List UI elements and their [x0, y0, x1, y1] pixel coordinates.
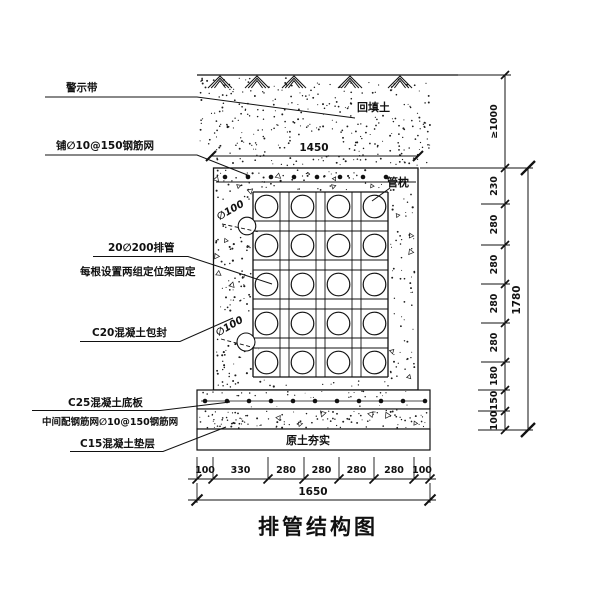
rebar-dot: [269, 399, 274, 404]
base-slab-label: C25混凝土底板: [68, 396, 143, 409]
duct-bank-section-drawing: ∅100 ∅100 管枕 原土夯实 回填土 警示带 铺∅10@150钢筋网 20…: [0, 0, 600, 600]
rebar-dot: [338, 175, 343, 180]
pipe-support-label: 管枕: [387, 175, 409, 189]
right-seg-6: 150: [489, 390, 500, 410]
ground-hatch-mark: [288, 81, 299, 88]
pipe-circle: [363, 234, 386, 257]
pipe-circle: [291, 312, 314, 335]
pipe-circle: [363, 351, 386, 374]
bottom-seg-6: 100: [412, 465, 432, 476]
ground-hatch-mark: [248, 78, 266, 88]
right-seg-5: 180: [489, 366, 500, 386]
pipe-circle: [291, 351, 314, 374]
right-dim-texts: ≥1000 230 280 280 280 280 180 150 100 17…: [489, 104, 523, 431]
bottom-seg-3: 280: [312, 465, 332, 476]
ground-hatch-mark: [214, 81, 225, 88]
ground-hatch-mark: [341, 78, 359, 88]
rebar-dot: [203, 399, 208, 404]
pipe-circle: [255, 195, 278, 218]
ground-hatch-mark: [344, 81, 355, 88]
right-seg-1: 280: [489, 214, 500, 234]
pipe-circle: [327, 195, 350, 218]
right-seg-7: 100: [489, 410, 500, 430]
pipe-circle: [255, 351, 278, 374]
rebar-dot: [313, 399, 318, 404]
pipe-circle: [255, 273, 278, 296]
rebar-dot: [223, 175, 228, 180]
pipe-circle: [255, 312, 278, 335]
ground-hatch-mark: [251, 81, 262, 88]
bottom-seg-5: 280: [384, 465, 404, 476]
rebar-dot: [292, 175, 297, 180]
slab-mesh-label: 中间配钢筋网∅10@150钢筋网: [42, 416, 178, 428]
ground-hatch: [208, 76, 412, 88]
pipe-circle: [255, 234, 278, 257]
pipe-circle: [291, 234, 314, 257]
rebar-dot: [357, 399, 362, 404]
pipe-circle: [327, 273, 350, 296]
pipe-circle: [363, 312, 386, 335]
rebar-dot: [315, 175, 320, 180]
pipe-circle: [291, 195, 314, 218]
cushion-label: C15混凝土垫层: [80, 437, 155, 450]
top-dim-value: 1450: [299, 142, 328, 154]
top-mesh-label: 铺∅10@150钢筋网: [56, 139, 154, 152]
warning-tape-leader: [45, 97, 355, 118]
pipe-circle: [291, 273, 314, 296]
pipe-circle: [327, 351, 350, 374]
right-seg-0: 230: [489, 176, 500, 196]
bottom-total-value: 1650: [298, 486, 327, 498]
ground-hatch-mark: [391, 78, 409, 88]
rebar-dot: [423, 399, 428, 404]
bottom-seg-2: 280: [276, 465, 296, 476]
cover-depth-value: ≥1000: [489, 104, 500, 139]
rebar-dot: [361, 175, 366, 180]
bottom-dim-texts: 100 330 280 280 280 280 100: [195, 465, 432, 476]
rebar-dot: [291, 399, 296, 404]
right-seg-3: 280: [489, 293, 500, 313]
pipe-circle: [327, 312, 350, 335]
pipes-label-line1: 20∅200排管: [108, 241, 175, 254]
drawing-sheet: ∅100 ∅100 管枕 原土夯实 回填土 警示带 铺∅10@150钢筋网 20…: [0, 0, 600, 600]
encasement-label: C20混凝土包封: [92, 326, 167, 339]
bottom-seg-1: 330: [231, 465, 251, 476]
bottom-seg-0: 100: [195, 465, 215, 476]
rebar-dot: [269, 175, 274, 180]
rebar-dot: [401, 399, 406, 404]
rebar-dot: [335, 399, 340, 404]
pipe-circle: [327, 234, 350, 257]
bottom-seg-4: 280: [347, 465, 367, 476]
right-seg-2: 280: [489, 254, 500, 274]
rebar-dot: [379, 399, 384, 404]
warning-tape-label: 警示带: [65, 81, 98, 94]
compacted-soil-label: 原土夯实: [286, 433, 330, 447]
backfill-soil-label: 回填土: [357, 100, 390, 114]
ground-hatch-mark: [394, 81, 405, 88]
rebar-dot: [247, 399, 252, 404]
pipe-circle: [363, 273, 386, 296]
pipes-label-line2: 每根设置两组定位架固定: [80, 265, 196, 278]
right-seg-4: 280: [489, 332, 500, 352]
drain-pipe-circle-upper: [238, 217, 256, 235]
drain-pipe-circle-lower: [237, 333, 255, 351]
right-total-value: 1780: [511, 285, 523, 314]
ground-hatch-mark: [285, 78, 303, 88]
drawing-title: 排管结构图: [258, 515, 378, 539]
